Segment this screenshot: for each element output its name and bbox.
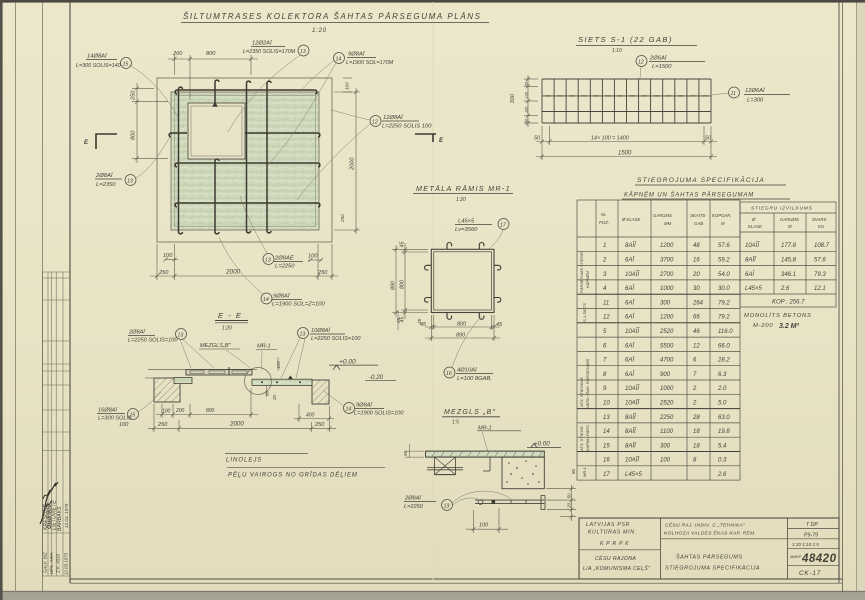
svg-text:54.0: 54.0 (718, 272, 730, 278)
svg-text:50: 50 (534, 136, 540, 142)
svg-text:1000: 1000 (660, 286, 674, 292)
svg-text:800: 800 (206, 51, 216, 57)
svg-text:2Ø8AĒ: 2Ø8AĒ (274, 255, 294, 262)
svg-text:2: 2 (692, 401, 697, 407)
svg-text:MAKP: MAKP (790, 554, 802, 559)
svg-text:MEZGLS„B": MEZGLS„B" (200, 343, 232, 349)
svg-text:L=1500: L=1500 (652, 64, 672, 70)
svg-text:2Ø8AĪ: 2Ø8AĪ (95, 172, 114, 179)
svg-text:KĀPNĒM: KĀPNĒM (585, 270, 590, 288)
svg-text:9Ø8AĪ: 9Ø8AĪ (356, 402, 373, 409)
svg-text:L=2250: L=2250 (275, 264, 295, 270)
svg-text:10: 10 (603, 401, 610, 407)
svg-text:CĒSU RAJ. INDIV. C „TEHNIKA": CĒSU RAJ. INDIV. C „TEHNIKA" (665, 522, 745, 529)
svg-text:12: 12 (603, 315, 610, 321)
svg-text:900: 900 (660, 372, 671, 378)
svg-text:CĒSU RAJONA: CĒSU RAJONA (595, 555, 636, 562)
svg-text:2520: 2520 (659, 329, 674, 335)
svg-text:20: 20 (272, 394, 277, 401)
svg-text:800: 800 (400, 280, 406, 289)
svg-text:18: 18 (693, 443, 700, 449)
svg-text:12.03.1979: 12.03.1979 (64, 552, 69, 575)
svg-text:10AĪĪ: 10AĪĪ (625, 385, 640, 392)
svg-text:LINOLEJS: LINOLEJS (226, 458, 262, 464)
svg-text:79.2: 79.2 (718, 315, 730, 321)
svg-text:66.0: 66.0 (718, 343, 730, 349)
svg-text:100: 100 (119, 422, 129, 428)
svg-text:13: 13 (300, 49, 306, 55)
svg-text:12: 12 (638, 60, 644, 66)
svg-text:1:20 1:10 1:5: 1:20 1:10 1:5 (792, 542, 819, 547)
svg-text:100: 100 (308, 254, 318, 260)
svg-text:18: 18 (693, 429, 700, 435)
svg-text:16: 16 (603, 458, 610, 464)
svg-text:13: 13 (127, 179, 133, 185)
svg-text:L=2250 SOLIS=100: L=2250 SOLIS=100 (311, 336, 361, 342)
svg-text:200: 200 (172, 51, 183, 57)
svg-text:250: 250 (314, 422, 325, 428)
svg-text:1:20: 1:20 (312, 28, 327, 34)
svg-text:2Ø8AĪ: 2Ø8AĪ (404, 495, 422, 502)
svg-text:L45×5: L45×5 (625, 472, 643, 478)
svg-text:30: 30 (693, 286, 700, 292)
svg-text:10Ø8AĪ: 10Ø8AĪ (311, 327, 331, 334)
svg-text:-0.20: -0.20 (369, 374, 384, 381)
svg-text:12: 12 (693, 343, 700, 349)
svg-text:10AĪĪ: 10AĪĪ (745, 242, 760, 249)
svg-text:+0.00: +0.00 (534, 441, 550, 448)
svg-text:+0.00: +0.00 (339, 359, 356, 366)
svg-text:2.6: 2.6 (717, 472, 727, 478)
svg-text:8AĪĪ: 8AĪĪ (745, 257, 757, 264)
svg-text:L=300 SOLIS=140: L=300 SOLIS=140 (76, 63, 121, 69)
svg-text:25: 25 (396, 317, 401, 324)
svg-text:145.8: 145.8 (781, 258, 797, 264)
svg-text:ATS. STIEGR.: ATS. STIEGR. (579, 425, 584, 452)
svg-text:20: 20 (567, 502, 572, 509)
svg-text:45: 45 (496, 322, 503, 328)
svg-text:M-200: M-200 (753, 323, 773, 329)
svg-text:METĀLA RĀMIS MR-1: METĀLA RĀMIS MR-1 (416, 184, 511, 193)
svg-text:10AĪĪ: 10AĪĪ (625, 328, 640, 335)
svg-text:GAB: GAB (694, 221, 703, 226)
svg-text:48420: 48420 (801, 553, 837, 565)
svg-text:PĀRSĒTUMS STIEGR.: PĀRSĒTUMS STIEGR. (579, 251, 584, 293)
svg-text:2Ø6AĪ: 2Ø6AĪ (649, 55, 668, 62)
svg-text:250: 250 (340, 214, 345, 223)
svg-text:15: 15 (130, 413, 136, 419)
svg-text:L=2250: L=2250 (404, 504, 424, 510)
svg-text:KOP : 256.7: KOP : 256.7 (772, 300, 805, 306)
svg-text:5.4: 5.4 (718, 443, 727, 449)
svg-text:L=2250 SOLIS=100: L=2250 SOLIS=100 (128, 338, 178, 344)
svg-text:GARUMS: GARUMS (780, 217, 799, 222)
svg-text:14: 14 (336, 57, 342, 63)
svg-text:9Ø8AĪ: 9Ø8AĪ (273, 293, 291, 300)
svg-text:LATVIJAS PSR: LATVIJAS PSR (586, 522, 630, 528)
svg-text:6AĪ: 6AĪ (625, 342, 635, 349)
svg-text:KULTŪRAS MIN.: KULTŪRAS MIN. (588, 529, 637, 536)
svg-text:13: 13 (603, 415, 610, 421)
svg-text:400: 400 (306, 413, 315, 419)
svg-text:6AĪ: 6AĪ (625, 257, 635, 264)
svg-text:1000: 1000 (660, 386, 674, 392)
svg-text:STIEGRU IZVILKUMS: STIEGRU IZVILKUMS (751, 206, 813, 212)
svg-text:MM: MM (664, 221, 672, 226)
svg-text:KOLHOZA VALDES ĒKAS KAP. REM.: KOLHOZA VALDES ĒKAS KAP. REM. (664, 530, 756, 537)
svg-text:12Ø6AĪ: 12Ø6AĪ (745, 87, 766, 94)
svg-text:2Ø8AĪ: 2Ø8AĪ (128, 329, 146, 336)
svg-text:50: 50 (705, 136, 711, 142)
svg-text:50: 50 (567, 493, 572, 499)
svg-text:MR-1: MR-1 (582, 467, 587, 477)
svg-text:IZPL. ARH.: IZPL. ARH. (49, 552, 54, 574)
svg-text:5500: 5500 (660, 343, 674, 349)
svg-text:200: 200 (175, 408, 185, 414)
svg-text:12Ø2AĪ: 12Ø2AĪ (252, 40, 273, 47)
svg-text:14Ø8AĪ: 14Ø8AĪ (87, 53, 108, 60)
svg-text:20: 20 (692, 272, 700, 278)
svg-text:L=2350: L=2350 (96, 182, 116, 188)
svg-text:MEZGLS „B": MEZGLS „B" (444, 409, 496, 416)
svg-text:100: 100 (525, 106, 529, 113)
svg-text:80: 80 (571, 468, 576, 474)
svg-text:2.6: 2.6 (780, 286, 790, 292)
svg-text:8AĪĪ: 8AĪĪ (625, 242, 637, 249)
svg-text:SIETS S-1 (22 GAB): SIETS S-1 (22 GAB) (578, 35, 673, 44)
svg-text:346.1: 346.1 (781, 272, 796, 278)
svg-text:KLASE: KLASE (748, 224, 762, 229)
svg-text:15: 15 (603, 443, 610, 449)
svg-text:L=100 8GAB.: L=100 8GAB. (457, 376, 492, 382)
svg-text:2: 2 (602, 258, 607, 264)
svg-text:250: 250 (131, 90, 137, 101)
svg-text:0.3: 0.3 (718, 458, 727, 464)
svg-text:300: 300 (660, 443, 671, 449)
svg-text:16: 16 (693, 258, 700, 264)
svg-text:28: 28 (692, 415, 700, 421)
svg-text:L=1900 SOL=170M: L=1900 SOL=170M (346, 60, 394, 66)
svg-text:L45×5: L45×5 (458, 219, 475, 225)
svg-text:300: 300 (510, 93, 516, 103)
svg-text:K P R P K: K P R P K (600, 541, 629, 547)
svg-text:100: 100 (525, 91, 529, 98)
svg-text:1500: 1500 (618, 151, 632, 157)
svg-text:177.8: 177.8 (781, 243, 797, 249)
svg-text:14: 14 (346, 407, 352, 413)
svg-text:KOPGAR.: KOPGAR. (712, 213, 732, 218)
svg-text:13: 13 (178, 333, 184, 339)
svg-text:9Ø8AĪ: 9Ø8AĪ (348, 51, 366, 58)
svg-text:2000: 2000 (229, 421, 244, 428)
svg-text:13: 13 (300, 332, 306, 338)
svg-text:2: 2 (692, 386, 697, 392)
svg-text:L=300 SOLIS: L=300 SOLIS (98, 416, 132, 422)
svg-text:100: 100 (479, 523, 488, 529)
svg-text:STIEGROJUMA SPECIFIKĀCIJA: STIEGROJUMA SPECIFIKĀCIJA (665, 565, 760, 572)
svg-text:KG: KG (818, 224, 825, 229)
svg-text:L=1900 SOLIS=100: L=1900 SOLIS=100 (354, 411, 404, 417)
svg-text:100: 100 (162, 409, 171, 415)
svg-text:S-1 SIETS: S-1 SIETS (582, 303, 587, 322)
svg-text:SKAITS: SKAITS (690, 213, 705, 218)
svg-text:Ø KLASE: Ø KLASE (621, 217, 641, 222)
svg-text:890: 890 (456, 333, 465, 339)
svg-text:2520: 2520 (659, 401, 674, 407)
svg-text:CK-17: CK-17 (799, 570, 821, 577)
svg-text:6AĪ: 6AĪ (625, 357, 635, 364)
svg-text:300: 300 (660, 300, 671, 306)
svg-text:800: 800 (131, 130, 137, 140)
svg-text:Z.K. 4910: Z.K. 4910 (56, 553, 61, 574)
svg-text:12.03. 1979: 12.03. 1979 (64, 503, 69, 528)
svg-text:6AĪ: 6AĪ (625, 299, 635, 306)
svg-text:15: 15 (123, 62, 129, 68)
svg-text:T DP: T DP (806, 522, 818, 528)
svg-text:L=300: L=300 (747, 98, 764, 104)
svg-text:GARUMS: GARUMS (653, 213, 672, 218)
svg-text:P9-79: P9-79 (804, 533, 818, 539)
svg-text:800: 800 (206, 408, 215, 414)
svg-text:890: 890 (391, 281, 397, 290)
svg-text:ŠAHTAS PĀRSEGUMS: ŠAHTAS PĀRSEGUMS (676, 554, 743, 561)
svg-text:1: 1 (603, 243, 606, 249)
svg-text:11: 11 (603, 300, 609, 306)
svg-text:800: 800 (457, 322, 466, 328)
svg-text:48: 48 (693, 243, 700, 249)
svg-text:3700: 3700 (660, 258, 674, 264)
svg-text:12: 12 (372, 120, 378, 126)
svg-text:L=2350 SOLIS=170M: L=2350 SOLIS=170M (243, 49, 296, 55)
svg-text:M: M (788, 224, 792, 229)
svg-text:57.6: 57.6 (718, 243, 730, 249)
svg-text:E - E: E - E (218, 311, 242, 320)
svg-text:120: 120 (276, 361, 281, 369)
svg-text:100: 100 (163, 253, 173, 259)
svg-text:2700: 2700 (659, 272, 674, 278)
svg-text:100: 100 (660, 458, 671, 464)
svg-text:14: 14 (263, 297, 269, 303)
svg-text:46: 46 (693, 329, 700, 335)
svg-text:250: 250 (317, 270, 328, 276)
svg-text:45: 45 (417, 318, 422, 324)
svg-text:8AĪĪ: 8AĪĪ (625, 442, 637, 449)
svg-text:L/A „KOMUNISMA CEĻŠ": L/A „KOMUNISMA CEĻŠ" (583, 565, 651, 572)
svg-text:2250: 2250 (659, 415, 674, 421)
svg-text:6AĪ: 6AĪ (745, 271, 755, 278)
svg-text:45: 45 (400, 241, 406, 248)
svg-text:30.0: 30.0 (718, 286, 730, 292)
svg-text:116.0: 116.0 (718, 329, 733, 335)
svg-text:250: 250 (158, 270, 169, 276)
svg-text:16: 16 (446, 371, 452, 377)
svg-text:M: M (721, 221, 725, 226)
svg-text:17: 17 (603, 472, 610, 478)
svg-text:59.2: 59.2 (718, 258, 730, 264)
svg-text:KĀPŅU PĀRS.: KĀPŅU PĀRS. (585, 424, 590, 451)
svg-text:60: 60 (265, 390, 270, 396)
svg-text:2.0: 2.0 (717, 386, 727, 392)
svg-text:L=1900 SOL=Z=100: L=1900 SOL=Z=100 (272, 302, 325, 308)
svg-text:14× 100 = 1400: 14× 100 = 1400 (591, 136, 629, 142)
svg-text:108.7: 108.7 (814, 243, 830, 249)
svg-text:1200: 1200 (660, 243, 674, 249)
svg-text:10AĪĪ: 10AĪĪ (625, 457, 640, 464)
svg-text:10AĪĪ: 10AĪĪ (625, 400, 640, 407)
svg-text:2000: 2000 (225, 269, 241, 276)
svg-text:12Ø8AĪ: 12Ø8AĪ (383, 114, 404, 121)
svg-text:4700: 4700 (660, 358, 674, 364)
svg-text:6.3: 6.3 (718, 372, 727, 378)
svg-text:L45×5: L45×5 (745, 286, 763, 292)
svg-text:MR-1: MR-1 (257, 344, 271, 350)
svg-text:57.6: 57.6 (814, 258, 826, 264)
svg-text:264: 264 (692, 300, 704, 306)
svg-text:79.3: 79.3 (814, 272, 826, 278)
svg-text:250: 250 (157, 422, 168, 428)
svg-text:2000: 2000 (350, 157, 356, 171)
svg-text:KĀPN.+ŠAH. PĀRSEGUMS: KĀPN.+ŠAH. PĀRSEGUMS (585, 358, 590, 409)
svg-text:8AĪĪ: 8AĪĪ (625, 414, 637, 421)
svg-text:1200: 1200 (660, 315, 674, 321)
svg-text:L=2250 SOLIS 100: L=2250 SOLIS 100 (382, 124, 432, 130)
svg-text:ŠILTUMTRASES KOLEKTORA ŠAHTA: ŠILTUMTRASES KOLEKTORA ŠAHTAS PĀRSEGUMA … (183, 12, 482, 21)
svg-text:1:20: 1:20 (456, 197, 466, 203)
svg-text:STIEGROJUMA SPECIFIKĀCIJA: STIEGROJUMA SPECIFIKĀCIJA (637, 176, 765, 184)
svg-text:SVARS: SVARS (812, 217, 826, 222)
svg-text:28.2: 28.2 (717, 358, 730, 364)
svg-text:79.2: 79.2 (718, 300, 730, 306)
svg-text:GALV. INŽ.: GALV. INŽ. (43, 551, 48, 573)
svg-text:6AĪ: 6AĪ (625, 285, 635, 292)
svg-text:10AĪĪ: 10AĪĪ (625, 271, 640, 278)
svg-text:13: 13 (444, 504, 450, 510)
svg-text:1:10: 1:10 (612, 48, 622, 54)
svg-text:PĒĻU VAIROGS NO GRĪDAS DĒĻIEM: PĒĻU VAIROGS NO GRĪDAS DĒĻIEM (228, 472, 358, 479)
svg-text:100: 100 (345, 82, 350, 90)
svg-text:1:5: 1:5 (452, 420, 459, 426)
svg-text:5.0: 5.0 (718, 401, 727, 407)
svg-text:1100: 1100 (660, 429, 674, 435)
svg-text:13: 13 (265, 258, 271, 264)
svg-text:3.2 M³: 3.2 M³ (779, 323, 800, 330)
svg-text:BARBAKS: BARBAKS (57, 506, 63, 531)
svg-text:14: 14 (603, 429, 610, 435)
svg-text:12.1: 12.1 (814, 286, 826, 292)
svg-text:63.0: 63.0 (718, 415, 730, 421)
svg-text:POZ.: POZ. (599, 220, 609, 225)
svg-text:6AĪ: 6AĪ (625, 371, 635, 378)
svg-text:66: 66 (693, 315, 700, 321)
svg-text:№: № (601, 212, 606, 217)
svg-text:6AĪ: 6AĪ (625, 314, 635, 321)
svg-text:KĀPNĒM UN ŠAHTAS PĀRSEGUMAM: KĀPNĒM UN ŠAHTAS PĀRSEGUMAM (624, 192, 754, 199)
svg-text:ATS. STIEGRAS: ATS. STIEGRAS (579, 377, 584, 408)
svg-text:8AĪĪ: 8AĪĪ (625, 428, 637, 435)
svg-text:16Ø8AĪ: 16Ø8AĪ (98, 407, 118, 414)
svg-text:19.8: 19.8 (718, 429, 730, 435)
svg-text:4Ø10AĪ: 4Ø10AĪ (457, 367, 478, 374)
svg-text:MONOLĪTS BETONS: MONOLĪTS BETONS (744, 312, 812, 319)
svg-text:Ø: Ø (751, 217, 756, 222)
svg-text:1:20: 1:20 (222, 326, 232, 332)
svg-text:Lv=3560: Lv=3560 (455, 227, 478, 233)
svg-text:11: 11 (731, 91, 736, 97)
